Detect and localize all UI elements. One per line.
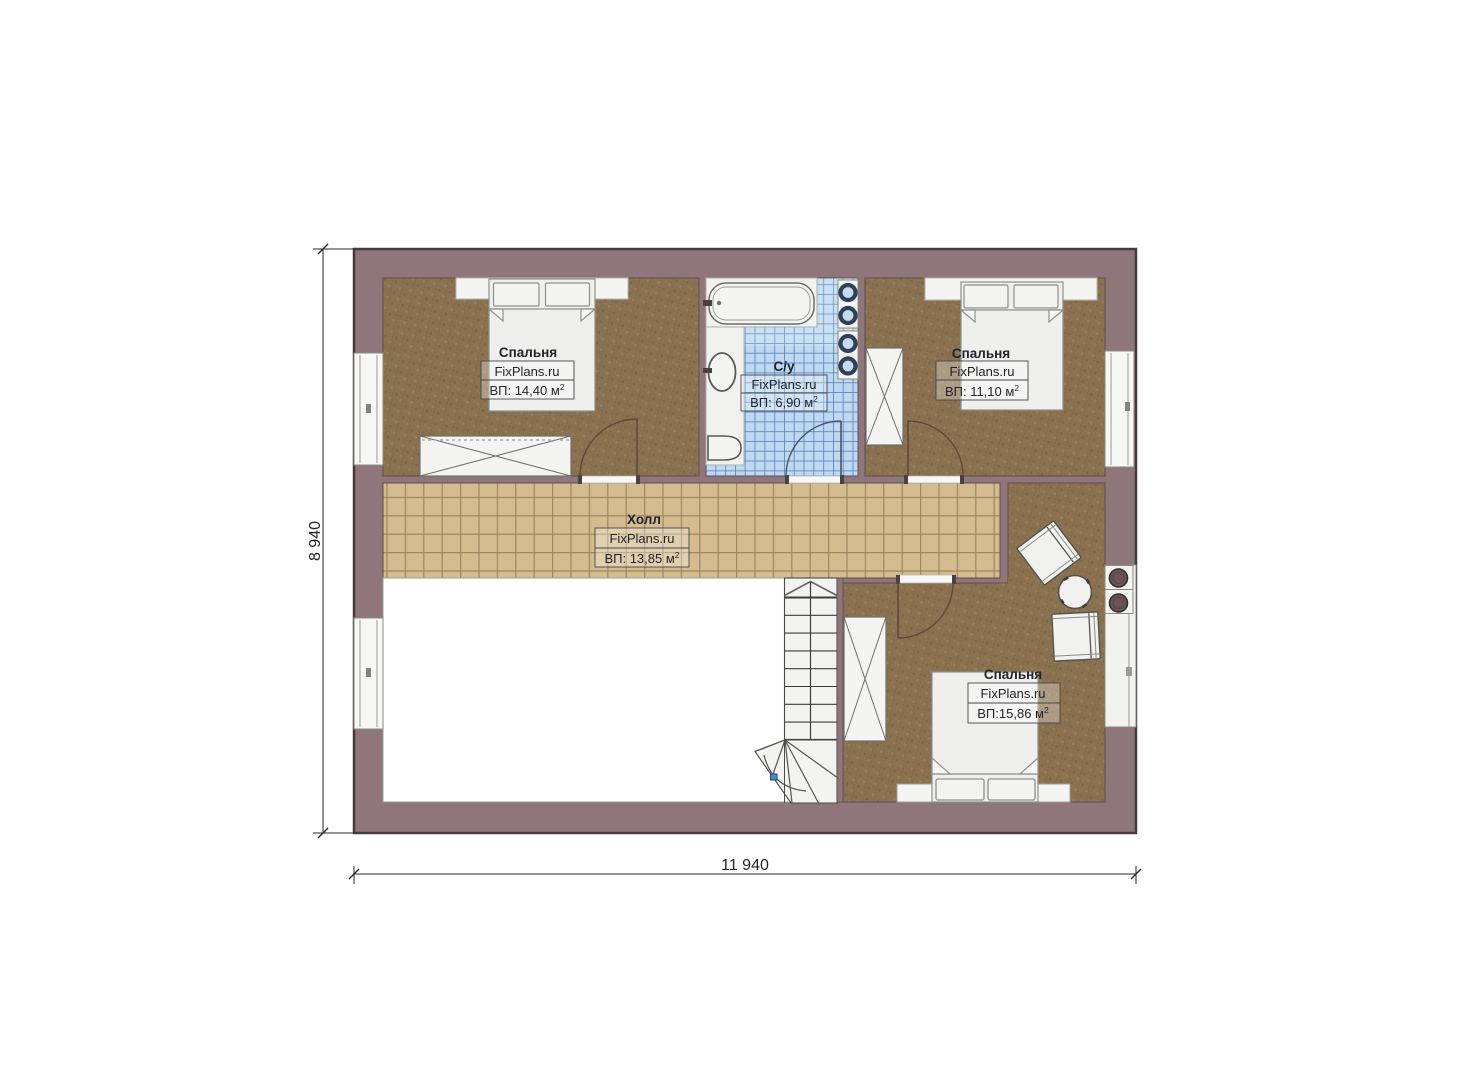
svg-text:Холл: Холл (627, 512, 661, 527)
svg-text:11 940: 11 940 (721, 857, 769, 874)
svg-text:FixPlans.ru: FixPlans.ru (494, 364, 559, 379)
svg-text:Спальня: Спальня (984, 667, 1042, 682)
svg-text:ВП: 6,90 м2: ВП: 6,90 м2 (750, 394, 818, 410)
svg-text:ВП: 11,10 м2: ВП: 11,10 м2 (945, 383, 1019, 399)
svg-text:ВП: 14,40 м2: ВП: 14,40 м2 (489, 382, 564, 398)
svg-text:ВП:15,86 м2: ВП:15,86 м2 (977, 705, 1049, 721)
svg-text:FixPlans.ru: FixPlans.ru (751, 377, 816, 392)
svg-text:FixPlans.ru: FixPlans.ru (980, 686, 1045, 701)
svg-text:ВП: 13,85 м2: ВП: 13,85 м2 (604, 550, 679, 566)
svg-text:FixPlans.ru: FixPlans.ru (949, 364, 1014, 379)
svg-text:Спальня: Спальня (499, 345, 557, 360)
svg-text:С/у: С/у (773, 359, 795, 374)
svg-text:FixPlans.ru: FixPlans.ru (609, 531, 674, 546)
svg-text:Спальня: Спальня (952, 346, 1010, 361)
svg-text:8 940: 8 940 (307, 521, 324, 561)
